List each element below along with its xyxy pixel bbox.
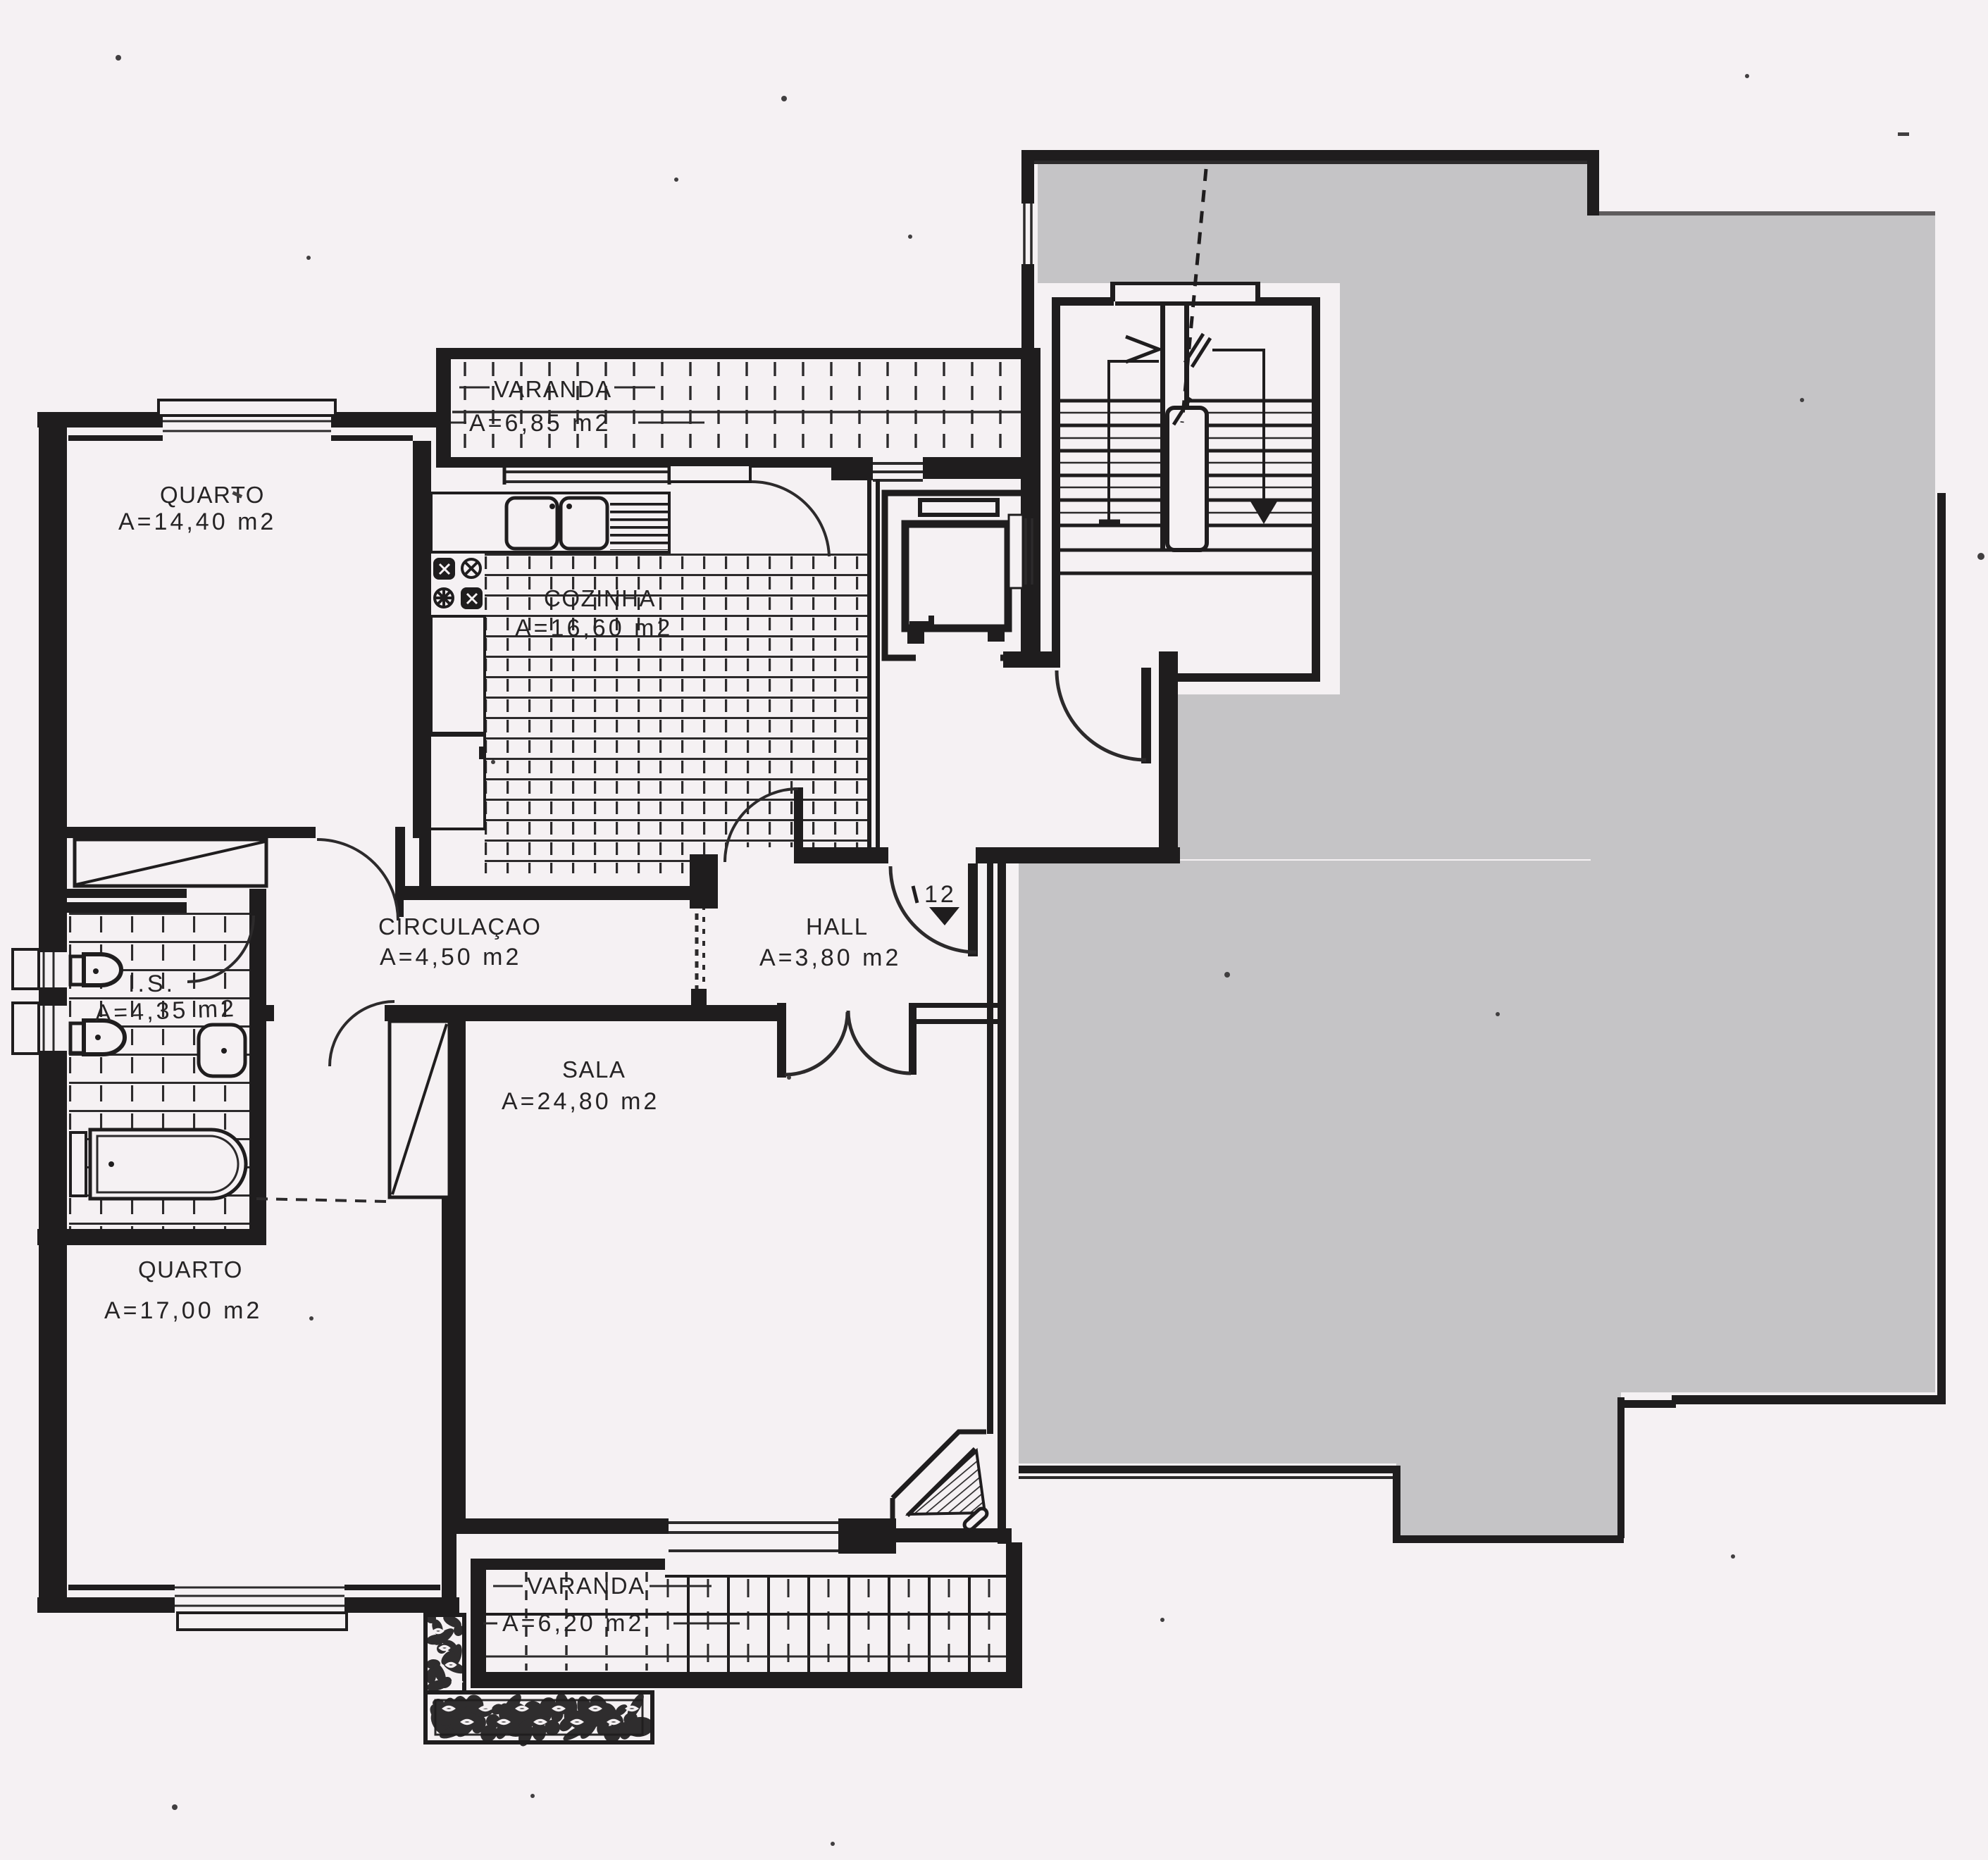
svg-text:COZINHA: COZINHA [544,585,656,611]
svg-text:SALA: SALA [562,1056,626,1082]
svg-text:A=4,35 m2: A=4,35 m2 [94,995,237,1027]
svg-text:A=16,60 m2: A=16,60 m2 [515,615,673,642]
svg-text:A=24,80 m2: A=24,80 m2 [502,1088,659,1115]
svg-text:12: 12 [924,881,957,908]
svg-text:A=14,40 m2: A=14,40 m2 [118,508,276,535]
svg-text:QUARTO: QUARTO [160,482,265,508]
svg-text:VARANDA: VARANDA [527,1573,645,1599]
svg-text:QUARTO: QUARTO [138,1256,243,1282]
svg-text:A=4,50 m2: A=4,50 m2 [380,944,521,970]
svg-text:HALL: HALL [806,913,869,940]
svg-text:A=6,20 m2: A=6,20 m2 [502,1610,644,1637]
svg-text:VARANDA: VARANDA [494,376,612,402]
svg-text:CIRCULAÇAO: CIRCULAÇAO [378,913,541,940]
svg-text:A=17,00 m2: A=17,00 m2 [104,1297,262,1324]
svg-text:I.S.: I.S. [128,970,175,997]
svg-text:A=6,85 m2: A=6,85 m2 [469,410,611,437]
svg-text:A=3,80 m2: A=3,80 m2 [759,944,901,971]
